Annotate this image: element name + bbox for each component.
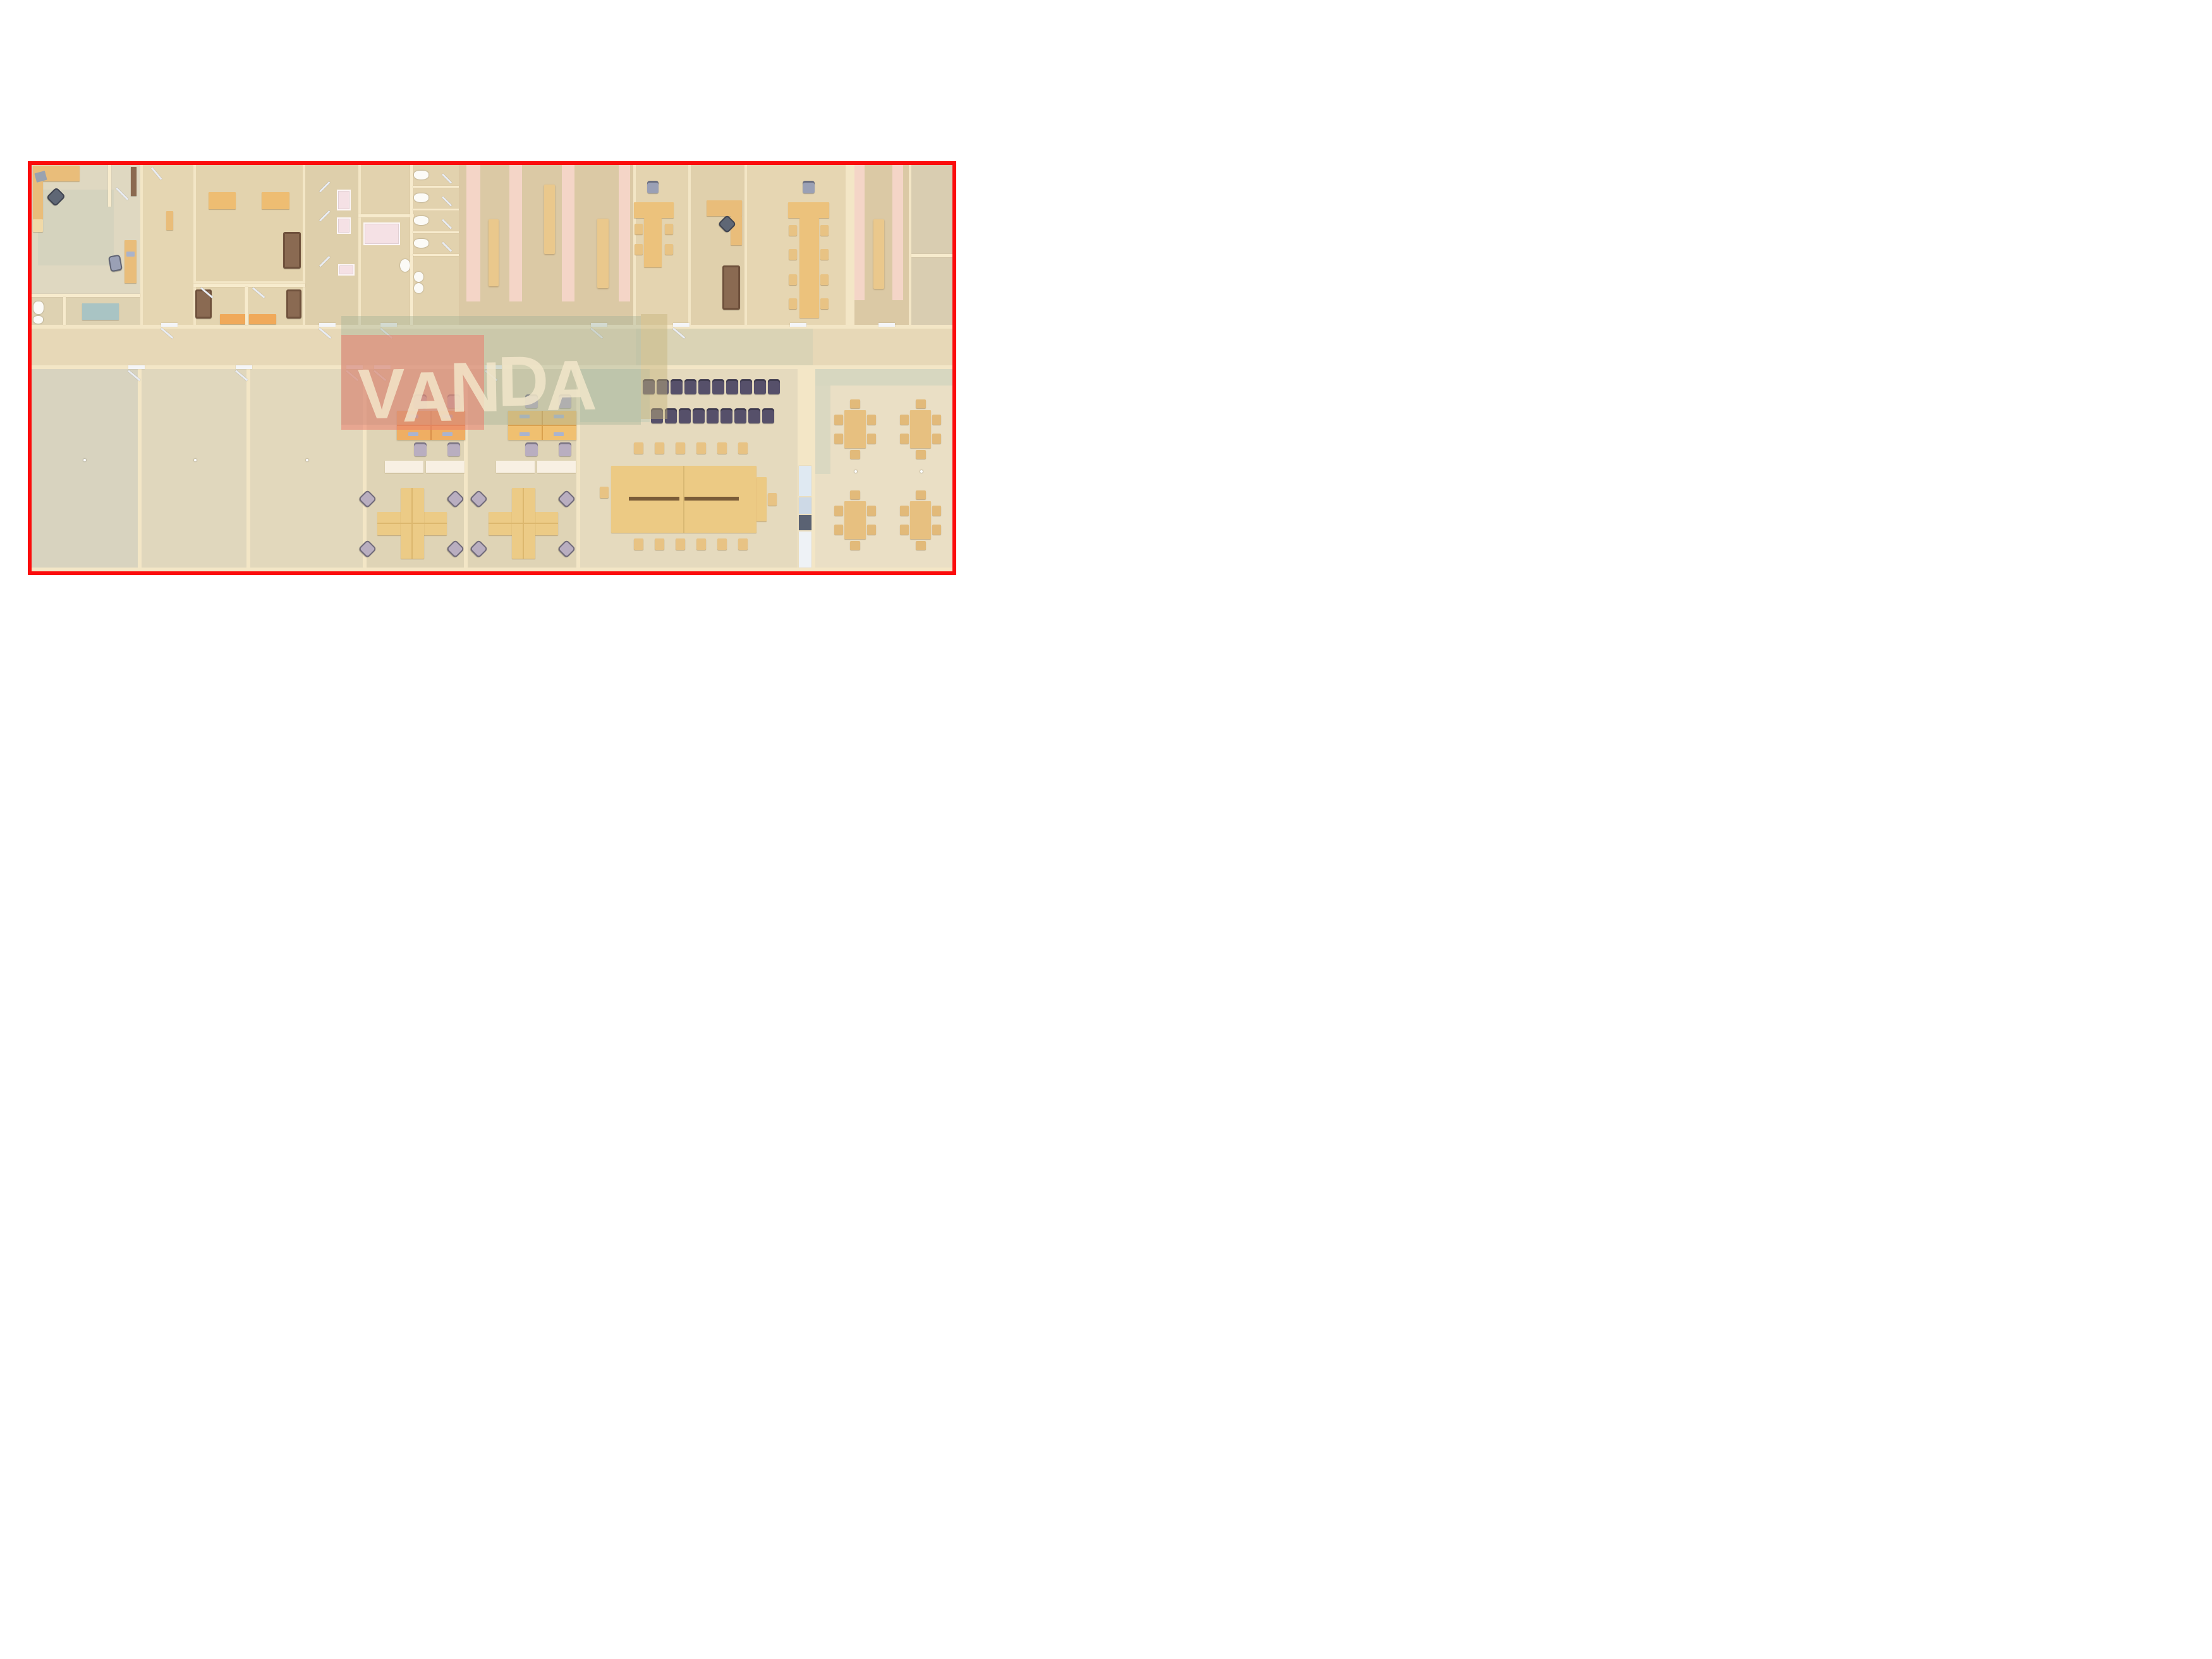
dining-set-1-chair-r1 <box>867 415 876 425</box>
sofa-c <box>283 232 301 269</box>
hall-stools-bottom-2 <box>655 538 664 550</box>
marker-dining-1 <box>854 470 857 473</box>
corr-band-1 <box>854 165 865 300</box>
chair-e3 <box>525 442 538 456</box>
t-stool-3 <box>665 224 673 234</box>
conf-table-stem <box>799 218 819 318</box>
side-cabinet <box>131 167 137 196</box>
reception-desk-return <box>33 181 43 219</box>
conf-stool-l2 <box>789 249 797 260</box>
wall-stall-1 <box>413 186 459 188</box>
locker-band-2 <box>509 165 522 301</box>
dining-set-4-chair-top <box>916 490 926 499</box>
dining-set-1-chair-top <box>850 399 860 408</box>
hall-stools-bottom-3 <box>676 538 685 550</box>
marker-dining-2 <box>920 470 923 473</box>
hall-chair-row-1-3 <box>671 379 683 394</box>
credenza-d2 <box>426 461 465 473</box>
wall-right-split <box>911 254 952 257</box>
floor-room-b <box>143 165 193 325</box>
table-b <box>166 211 173 230</box>
workdesk-a <box>125 240 137 283</box>
conf-stool-l1 <box>789 225 797 236</box>
hall-stools-bottom-1 <box>634 538 643 550</box>
dining-set-3-chair-l2 <box>834 525 843 535</box>
dining-set-3-chair-top <box>850 490 860 499</box>
hall-chair-row-1-5 <box>698 379 710 394</box>
dining-set-1-chair-l2 <box>834 434 843 444</box>
locker-bench-1 <box>489 219 499 286</box>
hall-table-ext <box>757 477 767 521</box>
hall-chair-row-2-3 <box>679 408 691 423</box>
locker-band-1 <box>466 165 480 301</box>
t-table-stem <box>644 218 662 267</box>
shower-tray-3 <box>338 264 355 276</box>
wall-a-partial <box>108 165 111 207</box>
floor-shower-col <box>305 165 358 325</box>
hall-stools-bottom-4 <box>696 538 706 550</box>
floor-plan-canvas: VANDA <box>0 0 983 738</box>
chair-d4 <box>447 442 460 456</box>
toilet-2 <box>33 316 43 324</box>
hall-stools-top-2 <box>655 442 664 454</box>
dining-set-1-chair-l1 <box>834 415 843 425</box>
mark-khaki <box>641 314 667 419</box>
hall-chair-row-2-5 <box>707 408 719 423</box>
t-stool-1 <box>635 224 643 234</box>
dining-set-4-chair-l2 <box>900 525 909 535</box>
dining-set-4-chair-r2 <box>932 525 941 535</box>
toilet-s3 <box>414 216 428 225</box>
tint-dining-top <box>815 369 952 386</box>
sill-b2 <box>236 365 252 369</box>
hall-stools-top-3 <box>676 442 685 454</box>
hall-stools-bottom-6 <box>738 538 748 550</box>
sill-b1 <box>128 365 145 369</box>
teal-cabinet <box>82 303 119 320</box>
wall-lounge-top <box>193 284 305 287</box>
marker-a2 <box>83 459 86 461</box>
vanda-watermark: VANDA <box>357 343 594 428</box>
wall-wc-div <box>63 297 66 325</box>
counter-mid <box>799 497 811 514</box>
dining-set-1-table <box>844 410 866 448</box>
wall-stall-3 <box>413 231 459 233</box>
hall-stool-left <box>600 487 609 498</box>
wall-stall-2 <box>413 209 459 210</box>
toilet-1 <box>33 301 44 314</box>
table-c2 <box>262 192 289 209</box>
wall-stall-4 <box>413 254 459 256</box>
l-desk-top <box>707 200 742 216</box>
dining-set-2-chair-r1 <box>932 415 941 425</box>
wall-stall-left <box>410 165 413 257</box>
locker-band-4 <box>619 165 630 301</box>
toilet-s2 <box>414 193 428 202</box>
tint-dining-left <box>815 386 830 474</box>
dining-set-2-chair-top <box>916 399 926 408</box>
counter-bottom <box>799 532 811 568</box>
hall-groove-1 <box>629 497 679 501</box>
locker-bench-3 <box>597 219 609 288</box>
floor-right-bottom <box>911 257 952 325</box>
hall-chair-row-1-8 <box>740 379 752 394</box>
table-lounge-2 <box>249 314 276 324</box>
wall-bath-mid <box>358 214 414 217</box>
shower-tray-1 <box>337 190 351 210</box>
hall-chair-row-1-6 <box>712 379 724 394</box>
sill-t6 <box>790 323 806 327</box>
watermark-letter-N-2: N <box>449 346 499 428</box>
dining-set-3-chair-r1 <box>867 506 876 516</box>
cross-e-line-h <box>489 523 558 524</box>
conf-table-top <box>788 202 829 218</box>
conf-stool-r1 <box>820 225 829 236</box>
locker-bench-2 <box>544 185 555 254</box>
floor-dining <box>815 369 952 568</box>
dining-set-1-chair-bottom <box>850 450 860 459</box>
sink-2 <box>414 272 423 282</box>
hall-chair-row-2-7 <box>734 408 746 423</box>
corr-band-2 <box>892 165 903 300</box>
chair-d3 <box>414 442 427 456</box>
watermark-letter-A-1: A <box>401 356 451 438</box>
floor-room-b2 <box>142 369 246 568</box>
hall-stools-top-4 <box>696 442 706 454</box>
counter-top <box>799 466 811 496</box>
counter-dark <box>799 515 811 530</box>
hall-chair-row-2-4 <box>693 408 705 423</box>
shower-tray-2 <box>337 217 351 234</box>
t-chair-head <box>647 181 659 193</box>
wall-stall-bottom <box>410 255 413 325</box>
monitor-a <box>126 252 135 257</box>
hall-groove-2 <box>684 497 739 501</box>
sill-t5 <box>673 323 690 327</box>
dining-set-2-chair-r2 <box>932 434 941 444</box>
credenza-e2 <box>537 461 576 473</box>
hall-chair-row-1-7 <box>726 379 738 394</box>
sink-3 <box>414 283 423 293</box>
monitor-e3 <box>520 432 530 436</box>
office-chair-2 <box>108 255 123 272</box>
t-stool-2 <box>635 244 643 255</box>
table-lounge-1 <box>220 314 246 324</box>
hall-chair-row-2-6 <box>720 408 732 423</box>
dining-set-4-chair-bottom <box>916 541 926 550</box>
watermark-letter-A-4: A <box>545 344 594 427</box>
t-table-top <box>634 202 674 218</box>
floor-room-a2 <box>32 369 138 568</box>
hall-stool-right <box>768 493 777 506</box>
bath-tray <box>363 222 400 245</box>
hall-chair-row-1-4 <box>684 379 696 394</box>
t-stool-4 <box>665 244 673 255</box>
conf-stool-r3 <box>820 274 829 285</box>
hall-chair-row-2-9 <box>762 408 774 423</box>
hall-chair-row-2-8 <box>748 408 760 423</box>
marker-c2 <box>306 459 308 461</box>
wall-lounge-mid <box>245 287 248 325</box>
sofa-lounge-2 <box>286 289 301 319</box>
credenza-d1 <box>385 461 423 473</box>
conf-stool-l3 <box>789 274 797 285</box>
dining-set-3-chair-bottom <box>850 541 860 550</box>
credenza-e1 <box>496 461 535 473</box>
conf-stool-l4 <box>789 298 797 309</box>
hall-chair-row-1-9 <box>754 379 766 394</box>
dining-set-1-chair-r2 <box>867 434 876 444</box>
sill-t1 <box>161 323 178 327</box>
sofa-l <box>722 265 740 310</box>
hall-chair-row-1-10 <box>768 379 780 394</box>
dining-set-2-chair-l1 <box>900 415 909 425</box>
floor-right-top <box>911 165 952 254</box>
chair-e4 <box>559 442 571 456</box>
conf-stool-r4 <box>820 298 829 309</box>
dining-set-2-chair-bottom <box>916 450 926 459</box>
hall-stools-top-1 <box>634 442 643 454</box>
hall-stools-bottom-5 <box>717 538 727 550</box>
dining-set-4-chair-l1 <box>900 506 909 516</box>
dining-set-3-table <box>844 501 866 539</box>
marker-b2 <box>194 459 197 461</box>
dining-set-2-table <box>910 410 931 448</box>
sill-t7 <box>878 323 895 327</box>
toilet-s4 <box>414 239 428 248</box>
dining-set-3-chair-r2 <box>867 525 876 535</box>
corr-bench <box>873 219 884 289</box>
dining-set-2-chair-l2 <box>900 434 909 444</box>
table-c1 <box>209 192 236 209</box>
hall-stools-top-5 <box>717 442 727 454</box>
sill-t2 <box>319 323 336 327</box>
toilet-s1 <box>414 171 428 179</box>
hall-stools-top-6 <box>738 442 748 454</box>
watermark-letter-V-0: V <box>357 353 403 435</box>
reception-cabinet <box>33 219 43 232</box>
dining-set-4-table <box>910 501 931 539</box>
watermark-letter-D-3: D <box>497 340 546 422</box>
sink-1 <box>400 259 410 272</box>
monitor-e4 <box>554 432 564 436</box>
conf-stool-r2 <box>820 249 829 260</box>
locker-band-3 <box>562 165 574 301</box>
cross-d-line-h <box>377 523 447 524</box>
dining-set-3-chair-l1 <box>834 506 843 516</box>
wall-wc-top <box>32 294 140 297</box>
conf-chair-head <box>803 181 815 193</box>
dining-set-4-chair-r1 <box>932 506 941 516</box>
